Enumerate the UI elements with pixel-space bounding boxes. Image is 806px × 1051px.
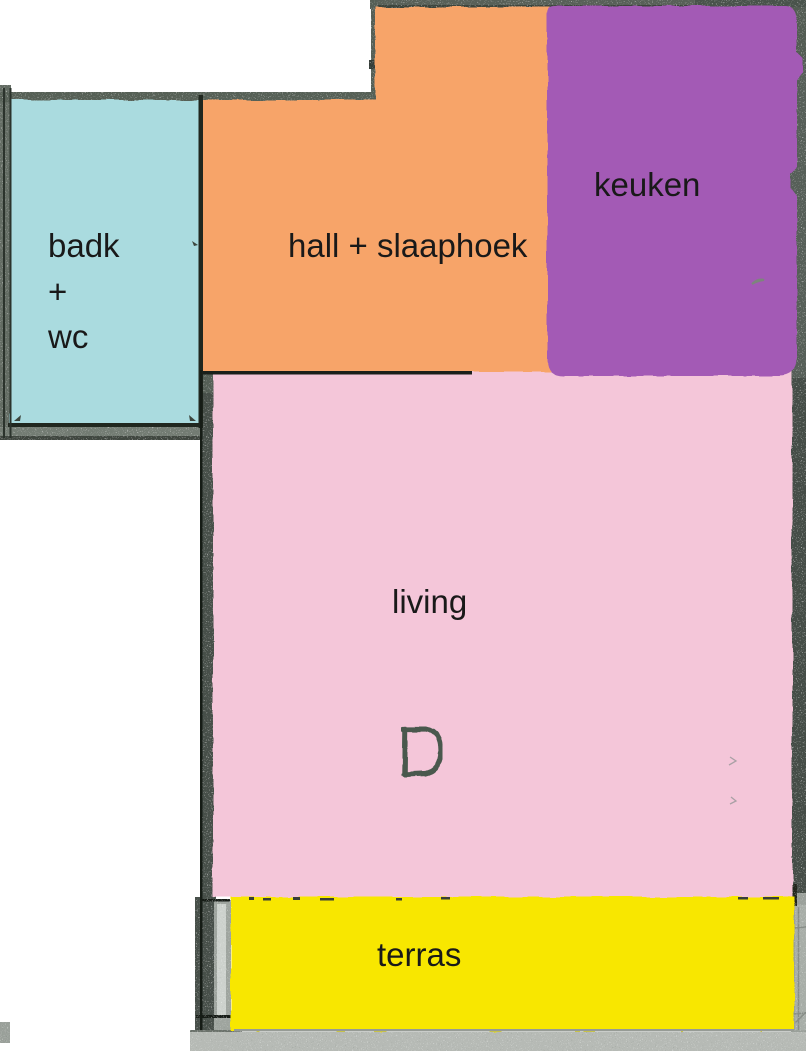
- svg-text:+: +: [48, 273, 67, 310]
- svg-text:wc: wc: [47, 318, 88, 355]
- svg-text:terras: terras: [377, 936, 461, 973]
- svg-text:badk: badk: [48, 227, 120, 264]
- svg-text:living: living: [392, 583, 467, 620]
- svg-text:hall + slaaphoek: hall + slaaphoek: [288, 227, 528, 264]
- svg-text:keuken: keuken: [594, 166, 700, 203]
